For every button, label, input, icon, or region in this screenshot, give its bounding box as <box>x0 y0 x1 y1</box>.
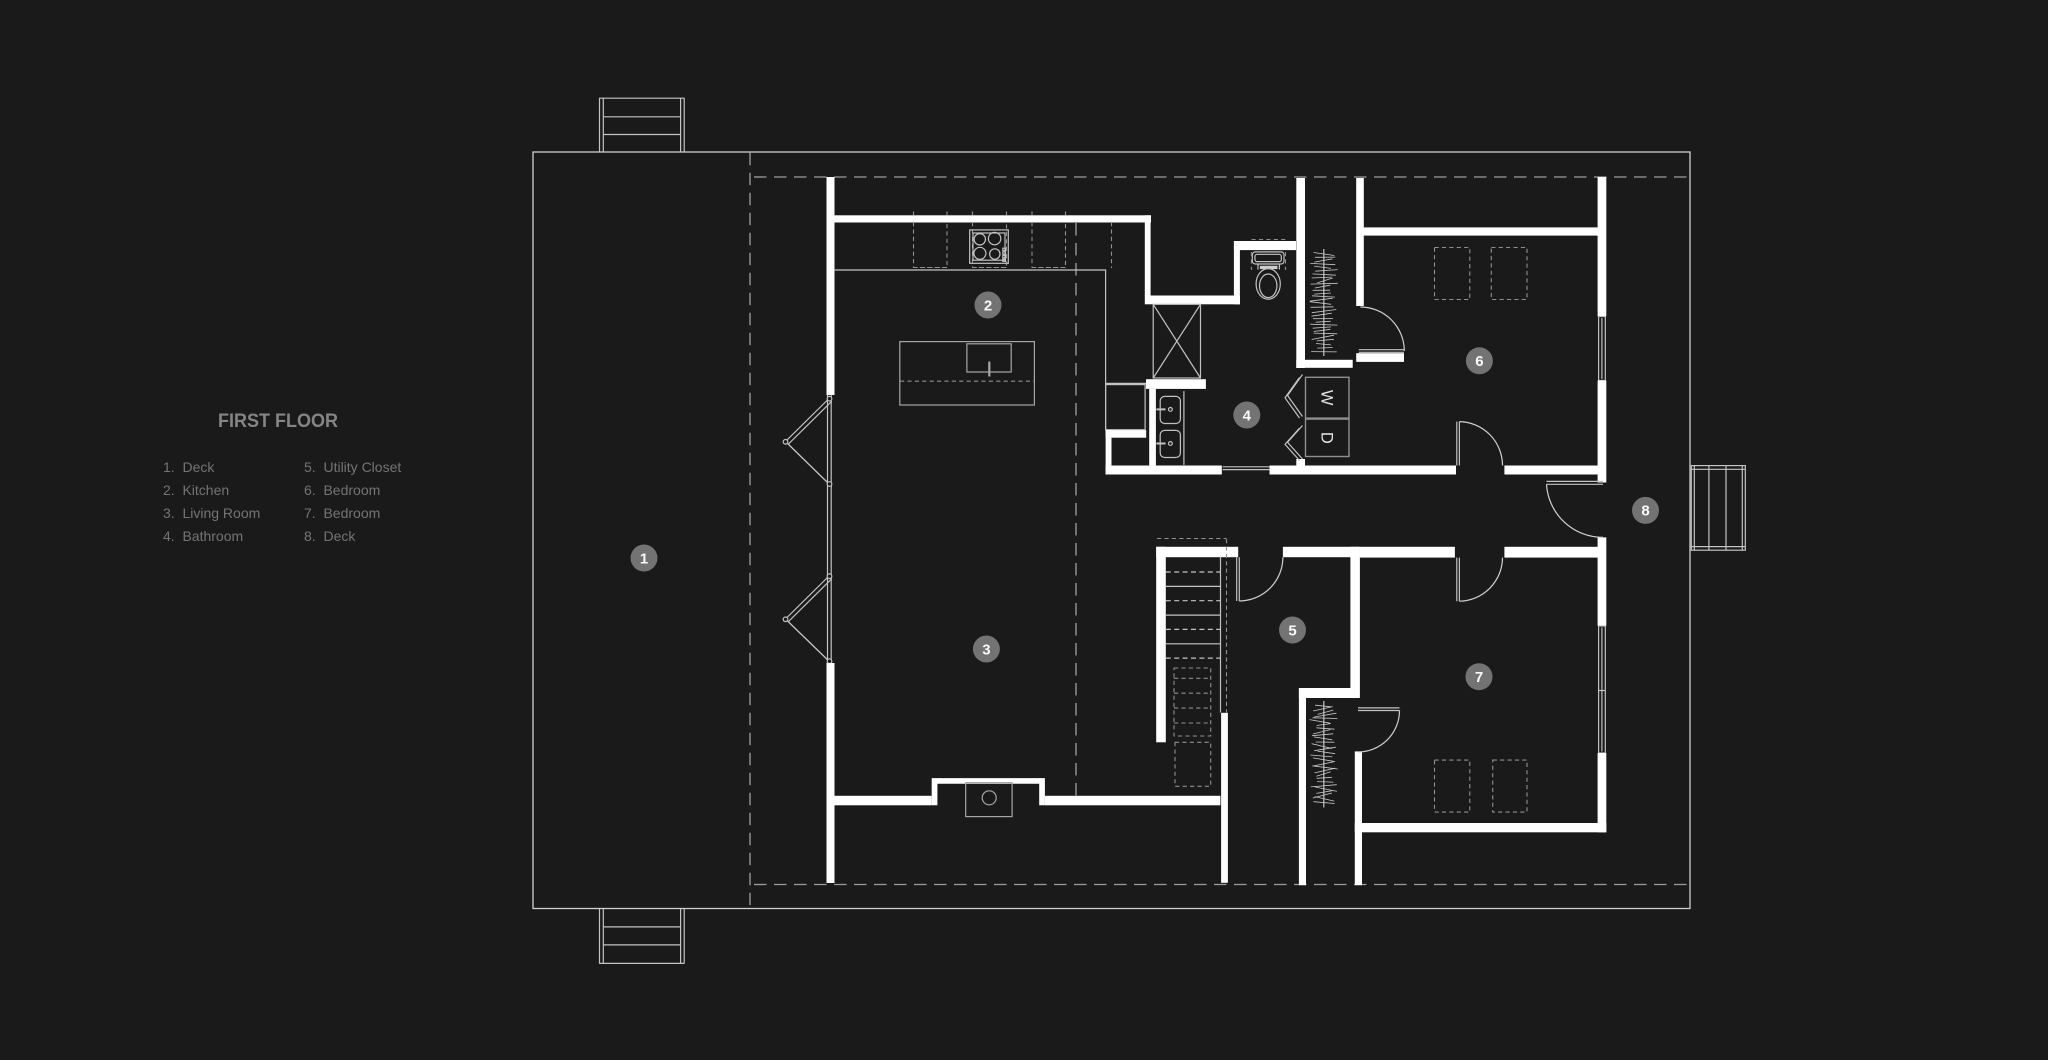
svg-text:5: 5 <box>1288 622 1296 639</box>
svg-text:6: 6 <box>1475 353 1483 370</box>
svg-text:8: 8 <box>1641 503 1649 520</box>
svg-text:2. Kitchen: 2. Kitchen <box>163 482 229 498</box>
svg-text:4. Bathroom: 4. Bathroom <box>163 528 243 544</box>
svg-text:1: 1 <box>640 550 648 567</box>
svg-text:W: W <box>1317 390 1335 406</box>
svg-text:3. Living Room: 3. Living Room <box>163 505 260 521</box>
svg-text:5. Utility Closet: 5. Utility Closet <box>304 459 401 475</box>
svg-text:1. Deck: 1. Deck <box>163 459 215 475</box>
svg-text:4: 4 <box>1243 407 1252 424</box>
svg-text:2: 2 <box>984 297 992 314</box>
svg-text:FIRST FLOOR: FIRST FLOOR <box>218 411 338 432</box>
svg-text:3: 3 <box>982 641 990 658</box>
svg-text:7. Bedroom: 7. Bedroom <box>304 505 380 521</box>
svg-text:6. Bedroom: 6. Bedroom <box>304 482 380 498</box>
svg-text:D: D <box>1317 432 1335 444</box>
svg-text:8. Deck: 8. Deck <box>304 528 356 544</box>
svg-text:7: 7 <box>1475 669 1483 686</box>
